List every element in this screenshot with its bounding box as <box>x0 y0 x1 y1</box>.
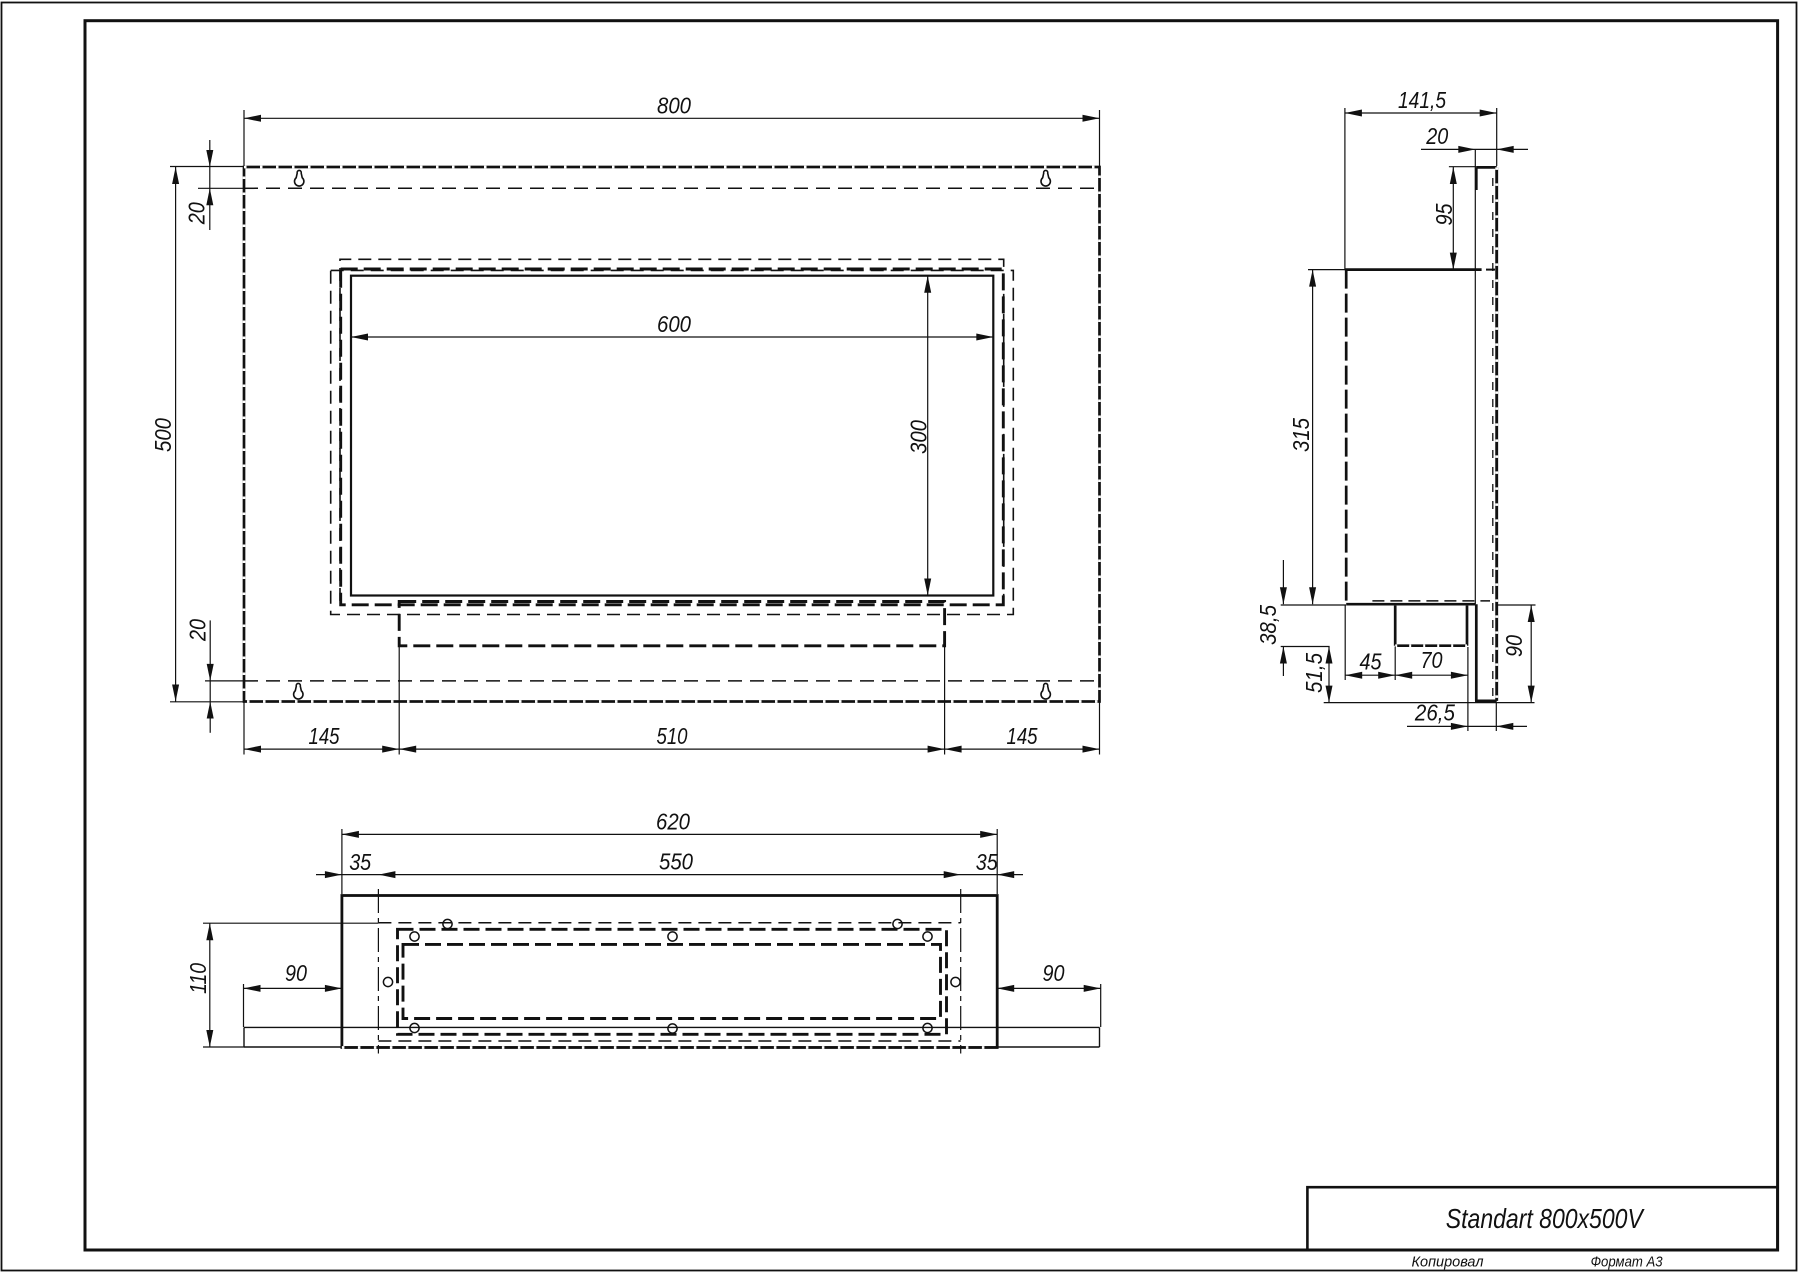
svg-text:800: 800 <box>657 92 691 118</box>
svg-text:300: 300 <box>906 420 932 454</box>
svg-text:90: 90 <box>285 960 307 986</box>
svg-text:315: 315 <box>1288 418 1314 452</box>
svg-text:510: 510 <box>657 723 688 749</box>
svg-text:600: 600 <box>657 311 691 337</box>
svg-text:38,5: 38,5 <box>1255 605 1281 645</box>
svg-text:620: 620 <box>656 808 690 834</box>
svg-text:20: 20 <box>185 619 211 642</box>
svg-text:145: 145 <box>1007 723 1038 749</box>
svg-text:45: 45 <box>1360 649 1382 675</box>
svg-text:90: 90 <box>1501 635 1527 657</box>
svg-text:Standart 800x500V: Standart 800x500V <box>1446 1203 1645 1234</box>
svg-text:141,5: 141,5 <box>1398 87 1446 113</box>
svg-text:70: 70 <box>1421 647 1443 673</box>
svg-text:110: 110 <box>185 963 211 994</box>
svg-text:Копировал: Копировал <box>1412 1254 1485 1271</box>
svg-text:550: 550 <box>659 849 693 875</box>
svg-text:51,5: 51,5 <box>1301 653 1327 693</box>
svg-text:500: 500 <box>150 418 176 452</box>
svg-text:20: 20 <box>184 202 210 225</box>
svg-text:145: 145 <box>309 723 340 749</box>
svg-text:95: 95 <box>1431 203 1457 225</box>
svg-text:Формат А3: Формат А3 <box>1591 1254 1664 1271</box>
svg-text:90: 90 <box>1043 960 1065 986</box>
svg-text:20: 20 <box>1425 123 1448 149</box>
svg-text:35: 35 <box>349 849 371 875</box>
svg-text:35: 35 <box>976 849 998 875</box>
svg-text:26,5: 26,5 <box>1414 700 1455 726</box>
